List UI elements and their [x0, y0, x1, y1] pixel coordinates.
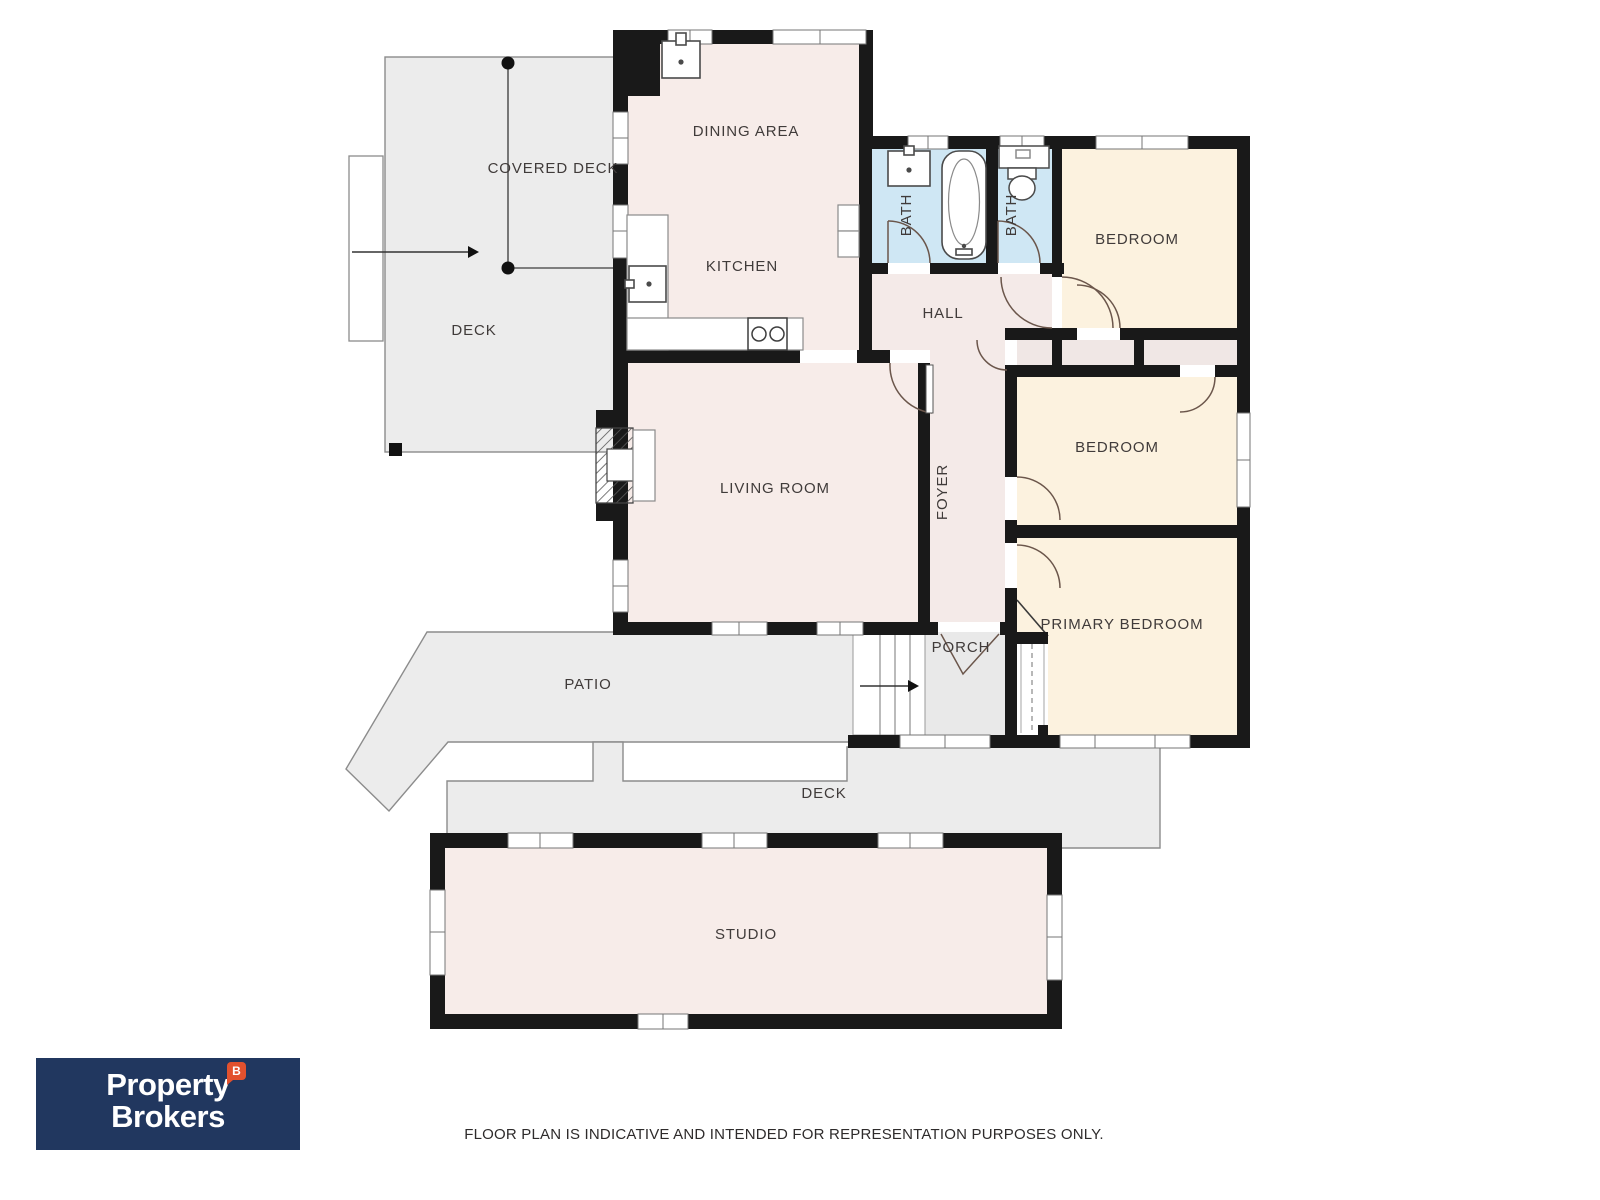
label-dining-area: DINING AREA: [693, 123, 800, 140]
window: [613, 205, 628, 258]
window: [773, 30, 866, 44]
bath-sink: [888, 146, 930, 186]
window: [1096, 136, 1188, 149]
upper-deck: [385, 57, 620, 452]
closet-fill: [1062, 340, 1134, 365]
deck-post: [502, 57, 515, 70]
window: [702, 833, 767, 848]
label-kitchen: KITCHEN: [706, 258, 778, 275]
logo-badge-icon: B: [227, 1062, 246, 1080]
window: [638, 1014, 688, 1029]
label-primary-bedroom: PRIMARY BEDROOM: [1041, 616, 1204, 633]
label-bath-2: BATH: [1003, 194, 1020, 237]
label-deck-lower: DECK: [801, 785, 846, 802]
label-foyer: FOYER: [934, 464, 951, 520]
label-deck-upper: DECK: [451, 322, 496, 339]
window: [430, 890, 445, 975]
deck-post: [389, 443, 402, 456]
window: [1060, 735, 1190, 748]
window: [613, 112, 628, 164]
window: [1237, 413, 1250, 507]
window: [1047, 895, 1062, 980]
label-bedroom-top: BEDROOM: [1095, 231, 1179, 248]
kitchen-sink: [625, 266, 666, 302]
window: [900, 735, 990, 748]
window: [817, 622, 863, 635]
porch-stairs: [853, 634, 925, 735]
label-living-room: LIVING ROOM: [720, 480, 830, 497]
logo-word-property: Property B: [106, 1069, 229, 1101]
window: [878, 833, 943, 848]
floor-plan: COVERED DECK DECK DINING AREA KITCHEN BA…: [0, 0, 1600, 1200]
closet-fill: [1017, 340, 1052, 365]
window: [508, 833, 573, 848]
room-primary-fill: [1017, 538, 1237, 735]
label-studio: STUDIO: [715, 926, 777, 943]
pantry-cupboard: [838, 205, 859, 231]
label-hall: HALL: [922, 305, 963, 322]
disclaimer-text: FLOOR PLAN IS INDICATIVE AND INTENDED FO…: [0, 1126, 1568, 1143]
stove: [748, 318, 787, 350]
label-bath-1: BATH: [898, 194, 915, 237]
label-bedroom-mid: BEDROOM: [1075, 439, 1159, 456]
pantry-cupboard: [838, 231, 859, 257]
bathtub: [942, 151, 986, 259]
window: [712, 622, 767, 635]
fireplace: [596, 428, 655, 503]
label-patio: PATIO: [564, 676, 611, 693]
label-porch: PORCH: [932, 639, 991, 656]
closet-fill: [1144, 340, 1237, 365]
label-covered-deck: COVERED DECK: [488, 160, 619, 177]
window: [613, 560, 628, 612]
deck-post: [502, 262, 515, 275]
bath-vanity: [999, 146, 1049, 168]
